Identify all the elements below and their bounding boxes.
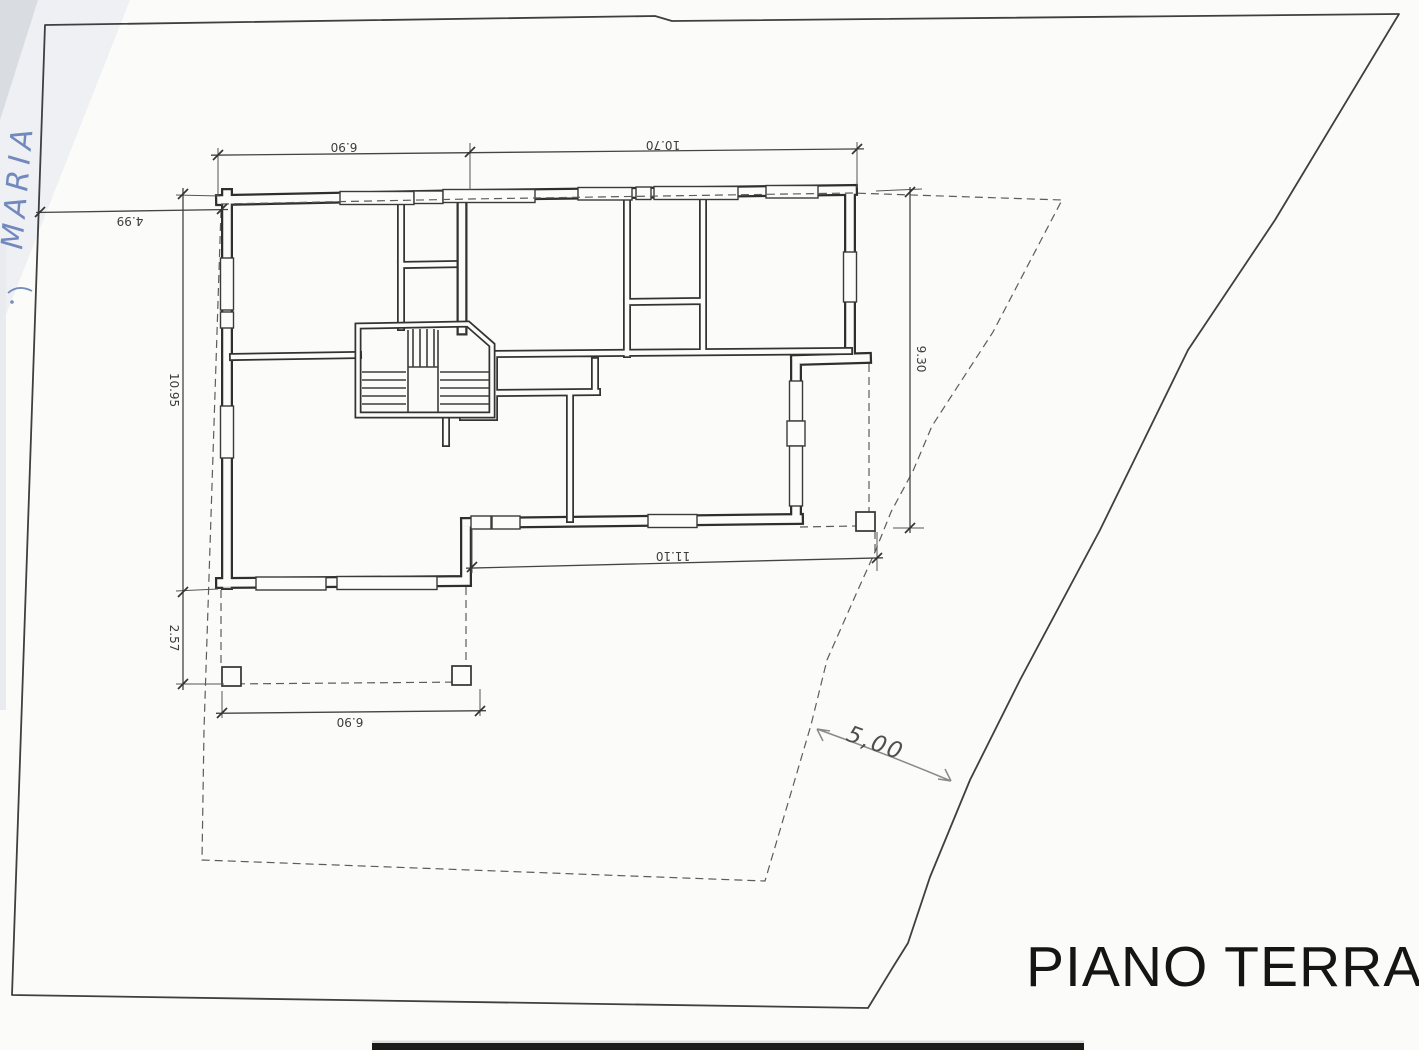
porch-pillar [452, 666, 471, 685]
terrace-pillar [856, 512, 875, 531]
wall-pier [636, 187, 651, 200]
floor-plan-canvas: 6.90 10.70 4.99 10.95 2.57 9.30 11.10 [0, 0, 1419, 1050]
window-opening [221, 258, 234, 310]
dimension-bottom-width-wing: 11.10 [466, 530, 883, 573]
door-opening [471, 516, 491, 529]
dimension-label-site-offset-left: 4.99 [117, 214, 144, 228]
dimension-porch-width: 6.90 [216, 689, 486, 729]
window-opening [766, 186, 818, 199]
dimension-label-right-height: 9.30 [914, 346, 928, 373]
window-opening [221, 406, 234, 458]
dimension-right-height: 9.30 [876, 187, 928, 533]
window-opening [844, 252, 857, 302]
staircase [358, 324, 492, 415]
scanned-floor-plan-sheet: 6.90 10.70 4.99 10.95 2.57 9.30 11.10 [0, 0, 1419, 1050]
wall-pier [787, 421, 805, 446]
window-opening [337, 577, 437, 590]
window-opening [443, 190, 535, 203]
dimension-left-height: 10.95 2.57 [167, 188, 224, 690]
site-boundary [12, 14, 1399, 1008]
drawing-title: PIANO TERRA [1026, 935, 1419, 999]
dimension-label-top-width-right: 10.70 [646, 138, 680, 152]
scan-artifact-bar [372, 1041, 1084, 1050]
window-opening [790, 446, 803, 506]
window-opening [578, 188, 632, 201]
wall-pier [414, 191, 443, 204]
porch-pillar [222, 667, 241, 686]
door-opening [492, 516, 520, 529]
paper-shadow-corner [0, 0, 130, 710]
pencil-dimension-setback: 5,00 [817, 721, 951, 781]
window-openings [221, 186, 857, 591]
dimension-label-top-width-left: 6.90 [331, 140, 358, 154]
dimension-label-left-height-main: 10.95 [167, 373, 181, 407]
dimension-label-porch-width: 6.90 [337, 715, 364, 729]
porch-dashed-outline [221, 587, 470, 684]
window-sill [221, 312, 234, 328]
window-opening [256, 577, 326, 590]
window-opening [340, 192, 414, 205]
stair-steps [362, 329, 490, 412]
handwritten-dot [10, 300, 14, 304]
dimension-label-bottom-width-wing: 11.10 [656, 549, 690, 563]
interior-walls [233, 194, 849, 519]
window-opening [790, 381, 803, 421]
window-opening [648, 515, 697, 528]
dimension-site-offset-left: 4.99 [35, 204, 228, 228]
dimension-label-setback-handwritten: 5,00 [843, 721, 908, 766]
exterior-walls [221, 190, 866, 584]
dimension-label-left-height-porch: 2.57 [167, 625, 181, 652]
window-opening [654, 187, 738, 200]
